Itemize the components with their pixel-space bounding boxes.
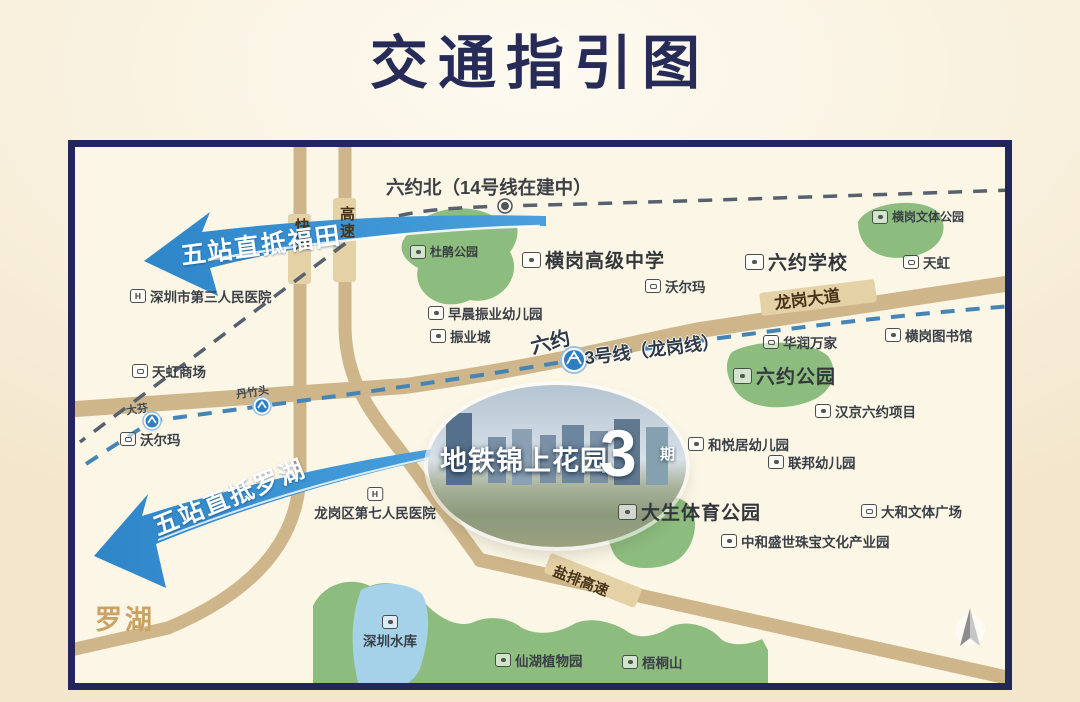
shop-icon [903,255,919,269]
shop-icon [645,279,661,293]
park-icon [410,245,426,259]
school-icon [768,455,784,469]
poi-park: 大生体育公园 [618,498,761,525]
poi-label: 大和文体广场 [881,501,962,521]
poi-label: 横岗文体公园 [892,208,964,225]
poi-school: 六约学校 [745,248,848,275]
district-label-luohu: 罗湖 [95,598,155,637]
station-danzhutou-icon [253,397,271,415]
library-icon [885,328,901,342]
traffic-guide-map: 地铁锦上花园 3 期 六约北（14号线在建中） 六约 3号线（龙岗线） 丹竹头 … [68,140,1012,690]
poi-park: 横岗文体公园 [872,208,964,225]
poi-factory: 汉京六约项目 [815,401,916,421]
poi-shop: 大和文体广场 [861,501,962,521]
poi-school: 早晨振业幼儿园 [428,303,543,323]
station-liuyuebei-label: 六约北（14号线在建中） [386,174,592,200]
poi-label: 天虹商场 [152,361,206,381]
factory-icon [430,329,446,343]
poi-label: 和悦居幼儿园 [708,434,789,454]
poi-park: 杜鹃公园 [410,243,478,260]
poi-label: 六约学校 [768,248,848,275]
poi-label: 大生体育公园 [641,498,761,525]
school-icon [745,254,764,270]
reservoir-icon [382,615,398,629]
park-icon [872,210,888,224]
poi-label: 横岗高级中学 [545,246,665,273]
property-phase-unit: 期 [660,443,675,464]
poi-label: 六约公园 [756,362,836,389]
poi-label: 深圳市第三人民医院 [150,286,272,306]
park-icon [618,504,637,520]
poi-shop: 天虹商场 [132,361,206,381]
poi-school: 和悦居幼儿园 [688,434,789,454]
shop-icon [120,432,136,446]
poi-label: 联邦幼儿园 [788,452,856,472]
poi-hospital: H龙岗区第七人民医院 [314,487,436,522]
poi-park: 六约公园 [733,362,836,389]
poi-label: 沃尔玛 [140,429,181,449]
poi-factory: 中和盛世珠宝文化产业园 [721,531,890,551]
factory-icon [721,534,737,548]
poi-label: 横岗图书馆 [905,325,973,345]
poi-school: 联邦幼儿园 [768,452,856,472]
poi-park: 梧桐山 [622,652,683,672]
station-dafen-label: 大芬 [125,400,149,419]
shop-icon [763,335,779,349]
poi-reservoir: 深圳水库 [363,615,417,650]
poi-hospital: H深圳市第三人民医院 [130,286,272,306]
park-icon [733,368,752,384]
hospital-icon: H [367,487,383,501]
poi-label: 杜鹃公园 [430,243,478,260]
poi-label: 中和盛世珠宝文化产业园 [741,531,890,551]
poi-label: 天虹 [923,252,950,272]
factory-icon [815,404,831,418]
poi-label: 仙湖植物园 [515,650,583,670]
property-phase-number: 3 [600,415,637,491]
poi-factory: 振业城 [430,326,491,346]
poi-label: 振业城 [450,326,491,346]
shop-icon [861,504,877,518]
poi-shop: 天虹 [903,252,950,272]
school-icon [428,306,444,320]
poi-park: 仙湖植物园 [495,650,583,670]
poi-label: 早晨振业幼儿园 [448,303,543,323]
compass-north-icon [955,608,985,646]
poi-label: 深圳水库 [363,630,417,650]
shop-icon [132,364,148,378]
poi-school: 横岗高级中学 [522,246,665,273]
poi-label: 龙岗区第七人民医院 [314,502,436,522]
school-icon [688,437,704,451]
poi-label: 汉京六约项目 [835,401,916,421]
poi-shop: 沃尔玛 [645,276,706,296]
poi-shop: 华润万家 [763,332,837,352]
station-liuyuebei-icon [498,199,512,213]
page-title: 交通指引图 [0,16,1080,100]
poi-library: 横岗图书馆 [885,325,973,345]
hospital-icon: H [130,289,146,303]
poi-shop: 沃尔玛 [120,429,181,449]
school-icon [522,252,541,268]
property-name: 地铁锦上花园 [440,439,608,478]
park-icon [495,653,511,667]
poi-label: 沃尔玛 [665,276,706,296]
park-icon [622,655,638,669]
poi-label: 华润万家 [783,332,837,352]
poi-label: 梧桐山 [642,652,683,672]
